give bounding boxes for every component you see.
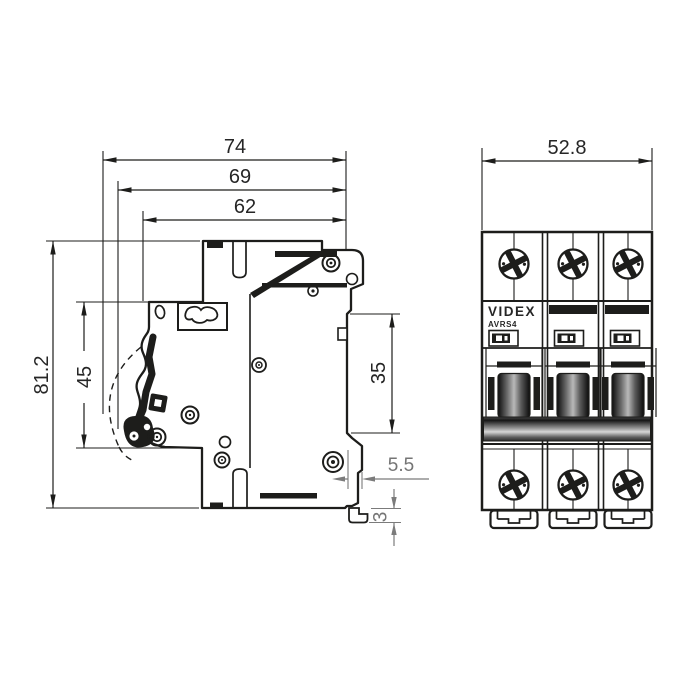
dim-label-45: 45 (74, 366, 96, 388)
dim-3: 3 (369, 489, 401, 546)
front-view: VIDEX AVRS4 (482, 232, 656, 528)
dim-label-69: 69 (229, 166, 251, 188)
toggle-tie-bar (484, 417, 651, 441)
dim-label-52_8: 52.8 (548, 137, 587, 159)
phillips-screw-icon (559, 471, 588, 500)
dim-45: 45 (74, 302, 96, 448)
lever-travel-arc-tail (119, 447, 134, 461)
pivot-center (133, 435, 136, 438)
mid-dark-bar (262, 283, 347, 288)
pivot-star (144, 424, 150, 430)
dim-81_2: 81.2 (31, 241, 56, 508)
dim-52_8: 52.8 (482, 137, 652, 164)
breaker-side-outline (135, 241, 363, 508)
dim-label-62: 62 (234, 196, 256, 218)
din-clip-foot (349, 508, 368, 523)
phillips-screw-icon (559, 250, 588, 279)
phillips-screw-icon (500, 250, 529, 279)
bottom-notch (210, 503, 223, 509)
dim-69: 69 (118, 166, 346, 193)
technical-drawing-canvas: 74 69 62 81.2 45 (0, 0, 700, 700)
label-bar-pole2 (549, 305, 597, 314)
extension-lines (482, 148, 652, 230)
dim-label-5_5: 5.5 (388, 455, 414, 476)
dim-label-81_2: 81.2 (31, 356, 53, 395)
brand-logo: VIDEX (488, 304, 536, 319)
phillips-screw-icon (614, 471, 643, 500)
toggle-lever-mechanism (109, 337, 154, 461)
label-bar-pole3 (605, 305, 649, 314)
indicator-window (555, 331, 584, 347)
breaker-dimension-drawing: 74 69 62 81.2 45 (0, 0, 700, 700)
square-nut-icon (148, 393, 168, 413)
dim-74: 74 (103, 136, 346, 163)
phillips-screw-icon (614, 250, 643, 279)
bottom-dark-bar (260, 493, 317, 499)
dim-35: 35 (368, 314, 395, 433)
terminal-tab (491, 511, 538, 529)
rail-lip-tab (338, 328, 347, 340)
terminal-tab (605, 511, 652, 529)
front-dimension: 52.8 (482, 137, 652, 230)
phillips-screw-icon (500, 471, 529, 500)
indicator-window (489, 331, 518, 347)
model-label: AVRS4 (488, 320, 517, 329)
dim-label-3: 3 (371, 512, 392, 523)
top-notch (207, 241, 223, 248)
side-view (109, 241, 367, 523)
indicator-window (611, 331, 640, 347)
terminal-tab (550, 511, 597, 529)
dim-62: 62 (143, 196, 346, 223)
dim-label-74: 74 (224, 136, 246, 158)
dim-label-35: 35 (368, 362, 390, 384)
